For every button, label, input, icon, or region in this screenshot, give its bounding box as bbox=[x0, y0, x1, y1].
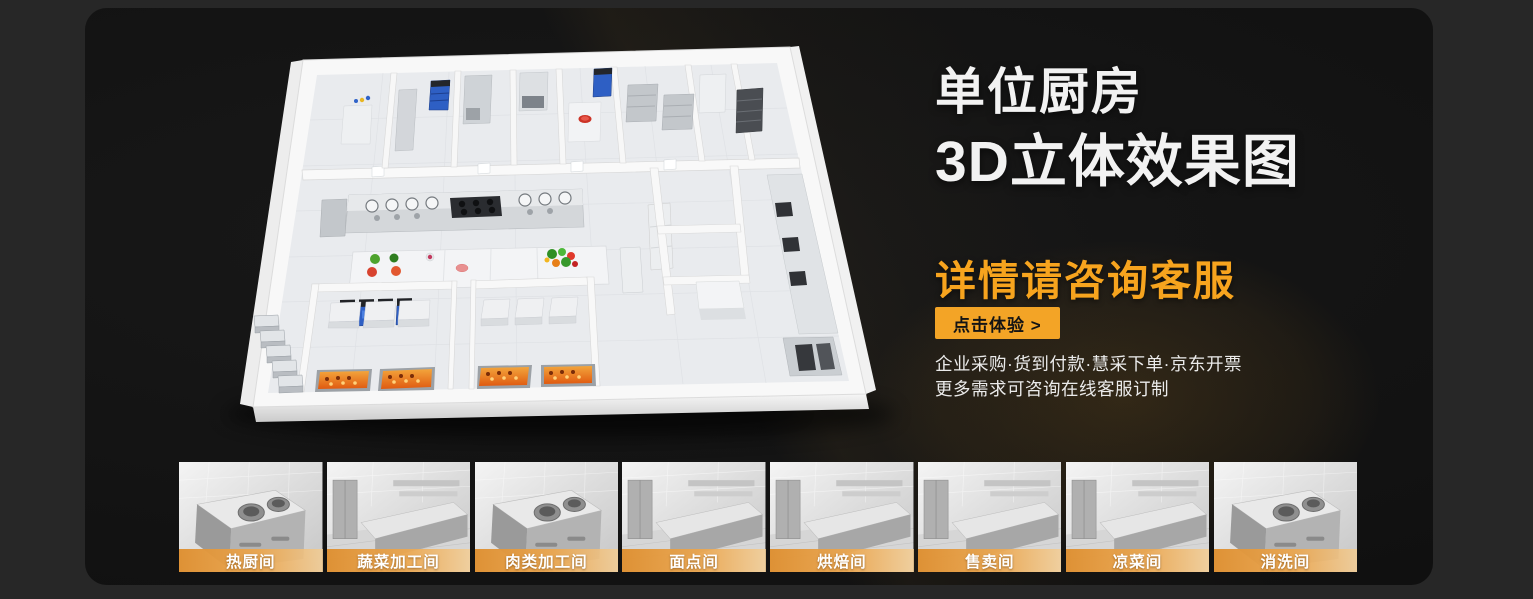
feature-line2: 更多需求可咨询在线客服订制 bbox=[935, 377, 1242, 402]
banner-title-line2: 3D立体效果图 bbox=[935, 130, 1300, 194]
thumbnail-vegetable-processing[interactable]: 蔬菜加工间 bbox=[327, 462, 471, 572]
thumbnail-pastry[interactable]: 面点间 bbox=[622, 462, 766, 572]
room-label: 凉菜间 bbox=[1113, 550, 1163, 572]
banner-subtitle: 详情请咨询客服 bbox=[935, 247, 1236, 307]
room-label: 面点间 bbox=[669, 550, 719, 572]
thumbnail-meat-processing[interactable]: 肉类加工间 bbox=[475, 462, 619, 572]
banner-title: 单位厨房 3D立体效果图 bbox=[935, 62, 1300, 194]
thumbnail-serving[interactable]: 售卖间 bbox=[918, 462, 1062, 572]
room-label-bar: 蔬菜加工间 bbox=[327, 549, 471, 572]
thumbnail-cold-dish[interactable]: 凉菜间 bbox=[1066, 462, 1210, 572]
room-label-bar: 面点间 bbox=[622, 549, 766, 572]
room-label-bar: 售卖间 bbox=[918, 549, 1062, 572]
room-label: 售卖间 bbox=[965, 550, 1015, 572]
thumbnail-hot-kitchen[interactable]: 热厨间 bbox=[179, 462, 323, 572]
room-thumbnail-strip: 热厨间 蔬菜加工间 肉类加工间 面点间 烘焙间 售卖间 凉菜间 消洗间 bbox=[179, 462, 1357, 572]
room-label: 消洗间 bbox=[1261, 550, 1311, 572]
room-label: 蔬菜加工间 bbox=[357, 550, 440, 572]
banner: 单位厨房 3D立体效果图 详情请咨询客服 点击体验 > 企业采购·货到付款·慧采… bbox=[0, 0, 1533, 599]
room-label: 肉类加工间 bbox=[505, 550, 588, 572]
room-label-bar: 消洗间 bbox=[1214, 549, 1358, 572]
room-label-bar: 热厨间 bbox=[179, 549, 323, 572]
feature-line1: 企业采购·货到付款·慧采下单·京东开票 bbox=[935, 352, 1242, 377]
banner-title-line1: 单位厨房 bbox=[935, 62, 1300, 122]
feature-lines: 企业采购·货到付款·慧采下单·京东开票 更多需求可咨询在线客服订制 bbox=[935, 352, 1242, 402]
room-label-bar: 凉菜间 bbox=[1066, 549, 1210, 572]
room-label: 热厨间 bbox=[226, 550, 276, 572]
room-label-bar: 烘焙间 bbox=[770, 549, 914, 572]
cta-button[interactable]: 点击体验 > bbox=[935, 307, 1060, 339]
room-label: 烘焙间 bbox=[817, 550, 867, 572]
room-label-bar: 肉类加工间 bbox=[475, 549, 619, 572]
thumbnail-baking[interactable]: 烘焙间 bbox=[770, 462, 914, 572]
thumbnail-dishwashing[interactable]: 消洗间 bbox=[1214, 462, 1358, 572]
